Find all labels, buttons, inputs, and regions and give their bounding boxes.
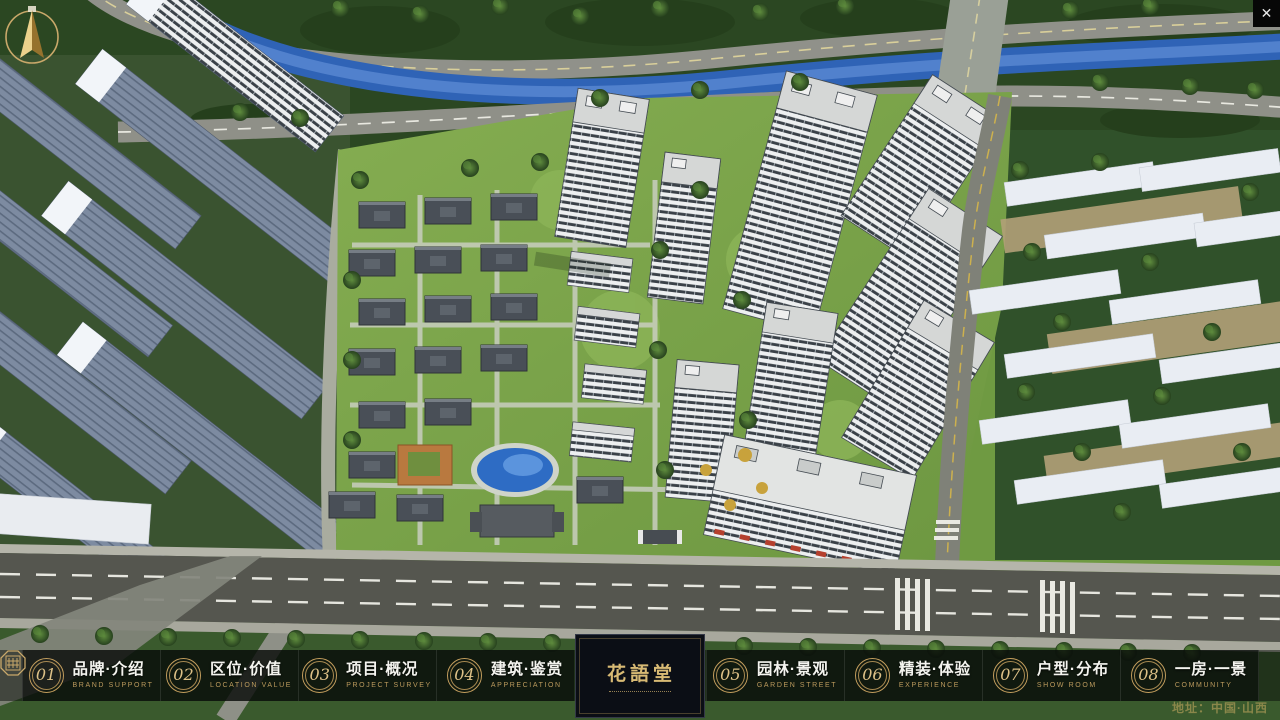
nav-item-floorplan-distribution[interactable]: 07 户型·分布 SHOW ROOM [982, 650, 1120, 701]
nav-label-en: EXPERIENCE [899, 682, 960, 689]
close-button[interactable]: ✕ [1253, 0, 1280, 27]
project-logo-title: 花語堂 [603, 659, 676, 686]
nav-label-en: COMMUNITY [1175, 682, 1233, 689]
nav-item-garden-landscape[interactable]: 05 园林·景观 GARDEN STREET [706, 650, 844, 701]
nav-item-one-home-one-view[interactable]: 08 一房·一景 COMMUNITY [1120, 650, 1259, 701]
nav-item-labels: 精装·体验 EXPERIENCE [899, 662, 971, 689]
nav-number-badge: 06 [855, 658, 890, 693]
nav-number: 07 [1000, 665, 1020, 684]
nav-label-zh: 园林·景观 [757, 662, 829, 678]
nav-label-en: APPRECIATION [491, 682, 562, 689]
aerial-render [0, 0, 1280, 720]
close-icon: ✕ [1261, 5, 1273, 22]
nav-number-badge: 05 [713, 658, 748, 693]
nav-number-badge: 07 [993, 658, 1028, 693]
nav-item-finishing-experience[interactable]: 06 精装·体验 EXPERIENCE [844, 650, 982, 701]
nav-item-labels: 项目·概况 PROJECT SURVEY [346, 662, 432, 689]
nav-number: 02 [173, 665, 193, 684]
nav-item-location-value[interactable]: 02 区位·价值 LOCATION VALUE [160, 650, 298, 701]
nav-item-architecture[interactable]: 04 建筑·鉴赏 APPRECIATION [436, 650, 574, 701]
nav-item-labels: 户型·分布 SHOW ROOM [1037, 662, 1109, 689]
nav-number: 08 [1138, 665, 1158, 684]
logo-tagline-rule [609, 691, 671, 692]
compass-icon [0, 0, 64, 68]
nav-label-en: BRAND SUPPORT [73, 682, 154, 689]
nav-number-badge: 03 [302, 658, 337, 693]
nav-label-zh: 精装·体验 [899, 662, 971, 678]
nav-number: 03 [310, 665, 330, 684]
nav-item-labels: 园林·景观 GARDEN STREET [757, 662, 837, 689]
nav-label-zh: 一房·一景 [1175, 662, 1247, 678]
project-logo-panel[interactable]: 花語堂 [575, 634, 705, 718]
nav-number: 05 [720, 665, 740, 684]
seal-icon [0, 650, 26, 676]
nav-number-badge: 02 [166, 658, 201, 693]
nav-label-zh: 建筑·鉴赏 [491, 662, 563, 678]
nav-number: 01 [36, 665, 56, 684]
nav-number-badge: 04 [447, 658, 482, 693]
nav-label-zh: 项目·概况 [346, 662, 418, 678]
nav-label-zh: 品牌·介绍 [73, 662, 145, 678]
nav-number-badge: 08 [1131, 658, 1166, 693]
nav-number-badge: 01 [29, 658, 64, 693]
project-address: 地址：中国·山西 [1172, 699, 1268, 716]
nav-label-en: LOCATION VALUE [210, 682, 292, 689]
nav-item-labels: 建筑·鉴赏 APPRECIATION [491, 662, 563, 689]
nav-number: 06 [862, 665, 882, 684]
nav-item-labels: 区位·价值 LOCATION VALUE [210, 662, 292, 689]
nav-label-en: SHOW ROOM [1037, 682, 1097, 689]
nav-item-labels: 一房·一景 COMMUNITY [1175, 662, 1247, 689]
nav-label-en: PROJECT SURVEY [346, 682, 432, 689]
nav-item-labels: 品牌·介绍 BRAND SUPPORT [73, 662, 154, 689]
nav-label-zh: 户型·分布 [1037, 662, 1109, 678]
nav-label-zh: 区位·价值 [210, 662, 282, 678]
nav-label-en: GARDEN STREET [757, 682, 837, 689]
nav-item-project-survey[interactable]: 03 项目·概况 PROJECT SURVEY [298, 650, 436, 701]
nav-item-brand-intro[interactable]: 01 品牌·介绍 BRAND SUPPORT [22, 650, 160, 701]
nav-number: 04 [454, 665, 474, 684]
sales-presentation-window: ✕ 01 品牌·介绍 BRAND SUPPORT 02 区位·价值 LOCATI… [0, 0, 1280, 720]
bottom-nav-bar: 01 品牌·介绍 BRAND SUPPORT 02 区位·价值 LOCATION… [0, 650, 1280, 701]
